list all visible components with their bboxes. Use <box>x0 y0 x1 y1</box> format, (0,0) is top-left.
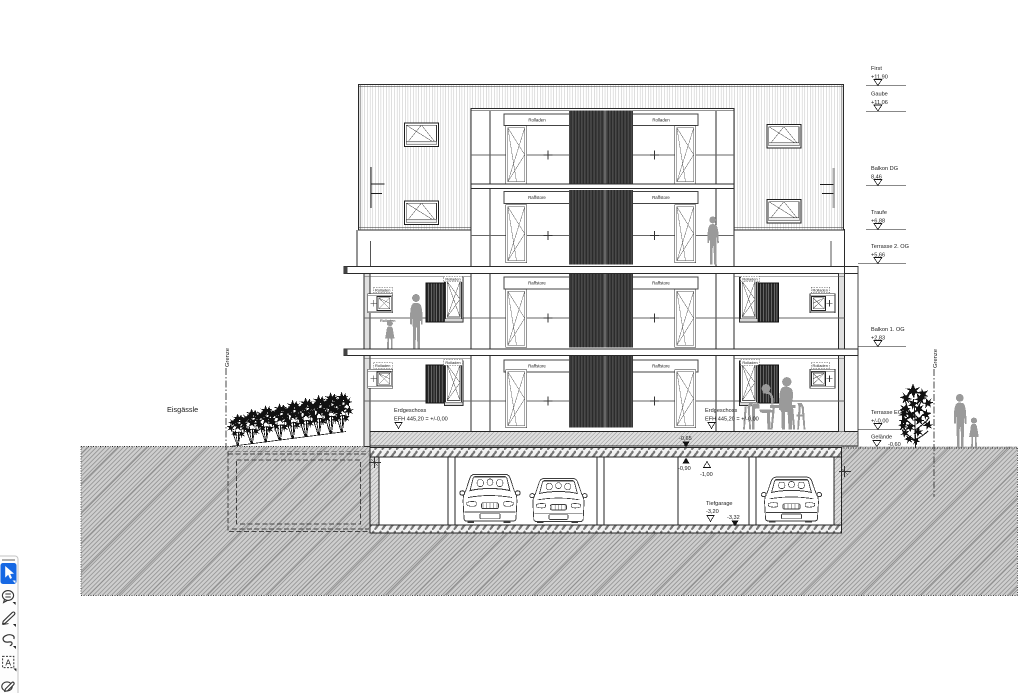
svg-text:First: First <box>871 66 882 72</box>
svg-text:-0,65: -0,65 <box>679 436 692 442</box>
svg-text:Traufe: Traufe <box>871 210 887 216</box>
svg-text:Erdgeschoss: Erdgeschoss <box>705 408 738 414</box>
svg-text:Tiefgarage: Tiefgarage <box>706 501 733 507</box>
svg-text:Eisgässle: Eisgässle <box>167 405 198 414</box>
svg-text:Rolladen: Rolladen <box>445 277 460 282</box>
svg-text:Terrasse 2. OG: Terrasse 2. OG <box>871 244 909 250</box>
svg-text:Rolladen: Rolladen <box>528 118 546 123</box>
svg-text:Terrasse EG: Terrasse EG <box>871 410 902 416</box>
svg-text:Raffstore: Raffstore <box>652 364 670 369</box>
svg-text:Balkon 1. OG: Balkon 1. OG <box>871 327 905 333</box>
svg-text:Grenze: Grenze <box>933 349 939 368</box>
svg-text:Gelände: Gelände <box>871 435 892 441</box>
svg-text:-1,00: -1,00 <box>700 472 713 478</box>
svg-text:Rolladen: Rolladen <box>813 288 828 293</box>
svg-text:Rolladen: Rolladen <box>742 277 757 282</box>
svg-text:Raffstore: Raffstore <box>652 195 670 200</box>
svg-text:Rolladen: Rolladen <box>375 363 390 368</box>
svg-text:Rolladen: Rolladen <box>813 363 828 368</box>
svg-text:Rolladen: Rolladen <box>445 360 460 365</box>
svg-text:Raffstore: Raffstore <box>652 281 670 286</box>
svg-text:Gaube: Gaube <box>871 92 888 98</box>
svg-text:-0,90: -0,90 <box>678 466 691 472</box>
svg-text:Erdgeschoss: Erdgeschoss <box>394 408 427 414</box>
svg-text:Rolladen: Rolladen <box>375 288 390 293</box>
svg-text:A: A <box>5 657 11 667</box>
svg-text:Raffstore: Raffstore <box>528 195 546 200</box>
svg-text:Rolladen: Rolladen <box>742 360 757 365</box>
svg-text:EFH 445,20 = +/-0,00: EFH 445,20 = +/-0,00 <box>394 417 448 423</box>
svg-text:-3,32: -3,32 <box>727 515 740 521</box>
svg-text:Rolladen: Rolladen <box>652 118 670 123</box>
svg-text:Grenze: Grenze <box>225 348 231 367</box>
svg-text:Raffstore: Raffstore <box>528 364 546 369</box>
svg-text:Balkon DG: Balkon DG <box>871 166 898 172</box>
svg-text:Raffstore: Raffstore <box>528 281 546 286</box>
svg-text:-3,20: -3,20 <box>706 509 719 515</box>
svg-text:-0,60: -0,60 <box>888 442 901 448</box>
svg-text:EFH 445,20 = +/-0,00: EFH 445,20 = +/-0,00 <box>705 417 759 423</box>
